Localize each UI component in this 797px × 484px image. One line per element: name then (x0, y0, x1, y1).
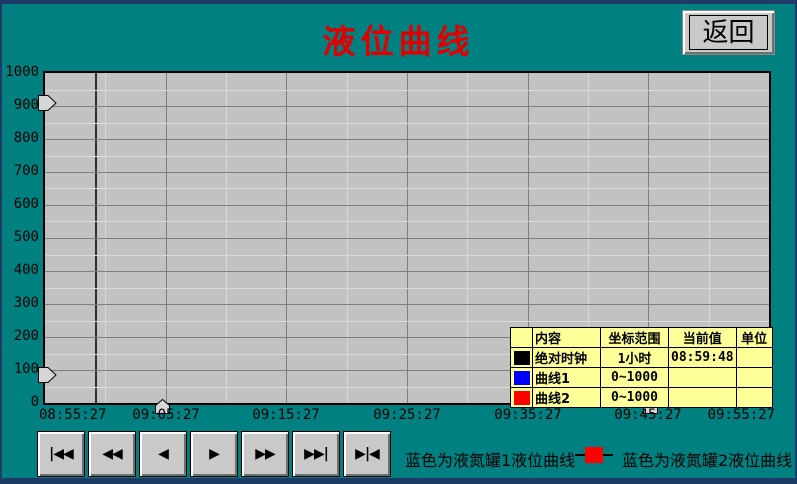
legend-row: 绝对时钟1小时08:59:48 (511, 348, 773, 368)
series-color-swatch (514, 371, 530, 385)
x-tick-label: 09:55:27 (708, 407, 775, 424)
x-tick-label: 09:05:27 (132, 407, 199, 424)
hmi-screen: 液位曲线 返回 内容坐标范围当前值单位 绝对时钟1小时08:59:48曲线10~… (0, 0, 797, 484)
y-tick-label: 100 (0, 361, 39, 378)
series-color-swatch (514, 351, 530, 365)
y-tick-label: 300 (0, 295, 39, 312)
legend-swatch-cell (511, 368, 533, 388)
y-axis-slider-upper[interactable] (38, 95, 57, 111)
y-tick-label: 1000 (0, 64, 39, 81)
legend-cell-unit (736, 368, 772, 388)
y-tick-label: 200 (0, 328, 39, 345)
frame-bottom (0, 478, 797, 484)
footer-caption-tank2: 蓝色为液氮罐2液位曲线 (622, 447, 792, 471)
footer-caption-tank1: 蓝色为液氮罐1液位曲线 (405, 447, 575, 471)
legend-header-cell: 当前值 (669, 328, 737, 348)
series-color-swatch (514, 391, 530, 405)
legend-swatch-cell (511, 388, 533, 408)
legend-header-cell: 内容 (533, 328, 601, 348)
legend-header-cell: 单位 (736, 328, 772, 348)
x-tick-label: 09:25:27 (373, 407, 440, 424)
playback-fast-rewind-button[interactable]: ◀◀ (88, 431, 136, 477)
legend-cell-current: 08:59:48 (669, 348, 737, 368)
legend-cell-unit (736, 388, 772, 408)
legend-cell-content: 曲线1 (533, 368, 601, 388)
legend-swatch-cell (511, 348, 533, 368)
y-axis-slider-lower[interactable] (38, 367, 57, 383)
legend-table-body: 绝对时钟1小时08:59:48曲线10~1000曲线20~1000 (511, 348, 773, 408)
grid-hline (45, 188, 769, 189)
marker-red-square (585, 447, 603, 463)
y-tick-label: 500 (0, 229, 39, 246)
y-tick-label: 400 (0, 262, 39, 279)
grid-hline (45, 288, 769, 289)
legend-cell-unit (736, 348, 772, 368)
playback-step-forward-button[interactable]: ▶ (190, 431, 238, 477)
grid-hline (45, 139, 769, 140)
grid-hline (45, 238, 769, 239)
back-button-label: 返回 (689, 15, 768, 50)
legend-cell-current (669, 368, 737, 388)
back-button[interactable]: 返回 (682, 10, 775, 55)
grid-hline (45, 255, 769, 256)
legend-cell-current (669, 388, 737, 408)
y-tick-label: 0 (0, 394, 39, 411)
legend-cell-content: 曲线2 (533, 388, 601, 408)
playback-jump-to-latest-button[interactable]: ▶|◀ (343, 431, 391, 477)
frame-top (0, 0, 797, 4)
grid-hline (45, 123, 769, 124)
legend-header-cell: 坐标范围 (601, 328, 669, 348)
playback-fast-forward-button[interactable]: ▶▶ (241, 431, 289, 477)
x-tick-label: 09:15:27 (252, 407, 319, 424)
legend-row: 曲线20~1000 (511, 388, 773, 408)
y-tick-label: 800 (0, 130, 39, 147)
playback-step-back-button[interactable]: ◀ (139, 431, 187, 477)
legend-row: 曲线10~1000 (511, 368, 773, 388)
x-tick-label: 09:45:27 (614, 407, 681, 424)
grid-hline (45, 221, 769, 222)
grid-hline (45, 205, 769, 206)
legend-cell-range: 1小时 (601, 348, 669, 368)
y-tick-label: 900 (0, 97, 39, 114)
y-tick-label: 700 (0, 163, 39, 180)
legend-cell-range: 0~1000 (601, 388, 669, 408)
page-title: 液位曲线 (0, 15, 797, 63)
legend-table-header: 内容坐标范围当前值单位 (511, 328, 773, 348)
grid-hline (45, 321, 769, 322)
y-tick-label: 600 (0, 196, 39, 213)
grid-hline (45, 304, 769, 305)
legend-table: 内容坐标范围当前值单位 绝对时钟1小时08:59:48曲线10~1000曲线20… (510, 327, 773, 408)
playback-skip-to-start-button[interactable]: |◀◀ (37, 431, 85, 477)
grid-hline (45, 172, 769, 173)
legend-cell-content: 绝对时钟 (533, 348, 601, 368)
playback-skip-to-end-button[interactable]: ▶▶| (292, 431, 340, 477)
legend-header-cell (511, 328, 533, 348)
grid-hline (45, 106, 769, 107)
grid-hline (45, 90, 769, 91)
grid-hline (45, 271, 769, 272)
playback-toolbar: |◀◀◀◀◀▶▶▶▶▶|▶|◀ (37, 431, 391, 477)
curve2-line-marker-icon (575, 446, 613, 464)
x-tick-label: 08:55:27 (39, 407, 106, 424)
legend-cell-range: 0~1000 (601, 368, 669, 388)
grid-hline (45, 156, 769, 157)
x-tick-label: 09:35:27 (494, 407, 561, 424)
